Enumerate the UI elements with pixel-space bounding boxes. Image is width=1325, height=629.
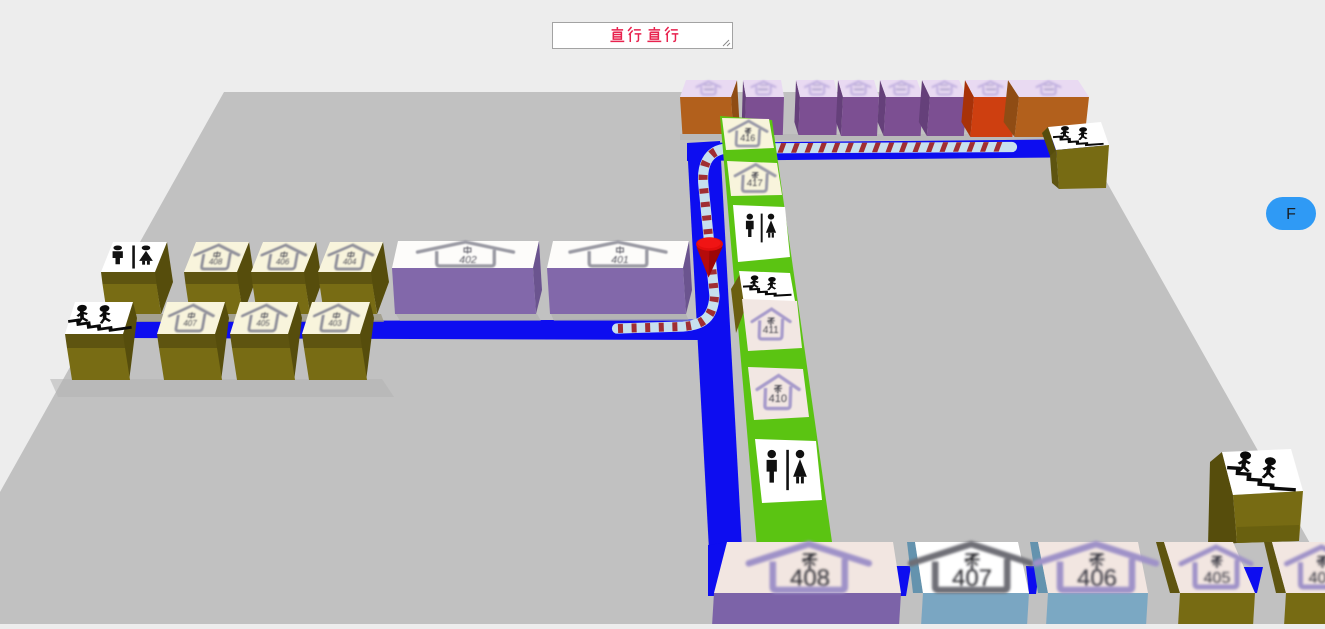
svg-text:405: 405 xyxy=(1204,570,1231,587)
svg-text:405: 405 xyxy=(256,319,271,328)
svg-text:406: 406 xyxy=(1077,565,1117,592)
svg-text:404: 404 xyxy=(1309,570,1325,587)
svg-text:404: 404 xyxy=(342,257,357,266)
svg-text:F: F xyxy=(1286,206,1296,223)
svg-text:408: 408 xyxy=(208,257,223,266)
svg-text:411: 411 xyxy=(763,325,780,336)
svg-text:416: 416 xyxy=(740,133,756,143)
svg-text:407: 407 xyxy=(952,565,992,592)
svg-text:402: 402 xyxy=(459,254,477,266)
svg-text:403: 403 xyxy=(328,319,343,328)
svg-text:410: 410 xyxy=(768,393,787,405)
svg-text:406: 406 xyxy=(275,257,290,266)
svg-text:417: 417 xyxy=(746,178,762,189)
svg-text:407: 407 xyxy=(183,319,198,328)
svg-text:401: 401 xyxy=(611,254,629,266)
svg-text:408: 408 xyxy=(790,565,830,592)
